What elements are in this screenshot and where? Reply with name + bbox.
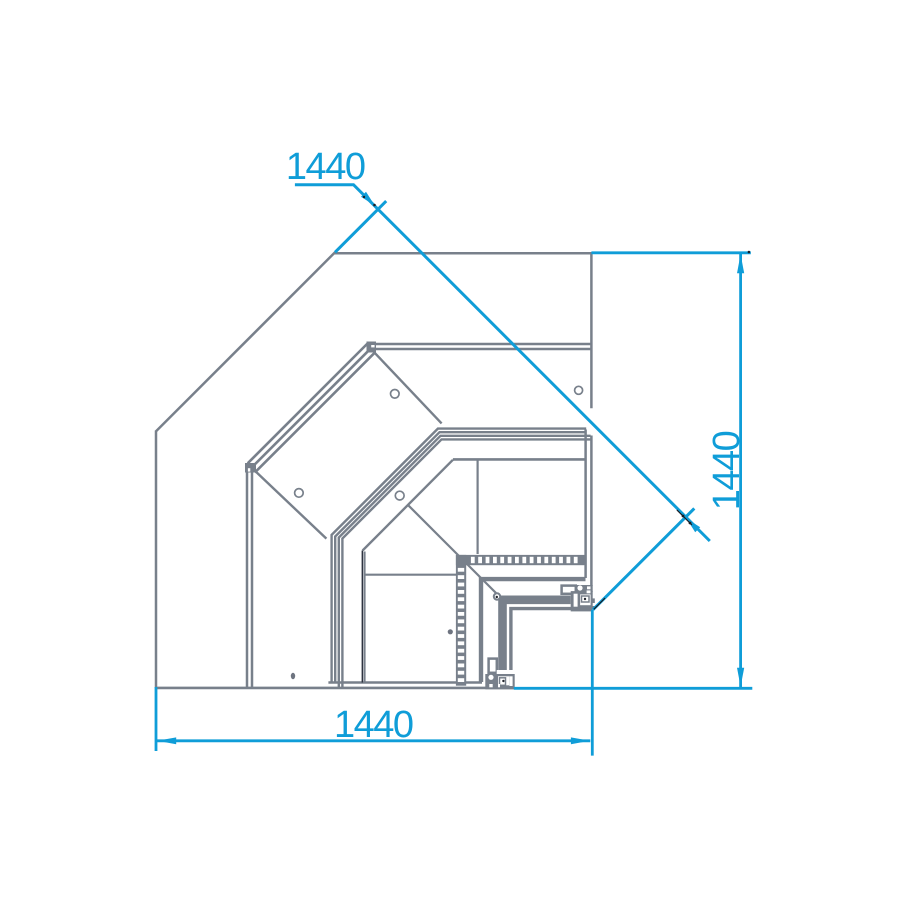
svg-text:1440: 1440 [334,704,413,746]
svg-text:1440: 1440 [286,146,365,188]
svg-text:1440: 1440 [706,431,748,510]
